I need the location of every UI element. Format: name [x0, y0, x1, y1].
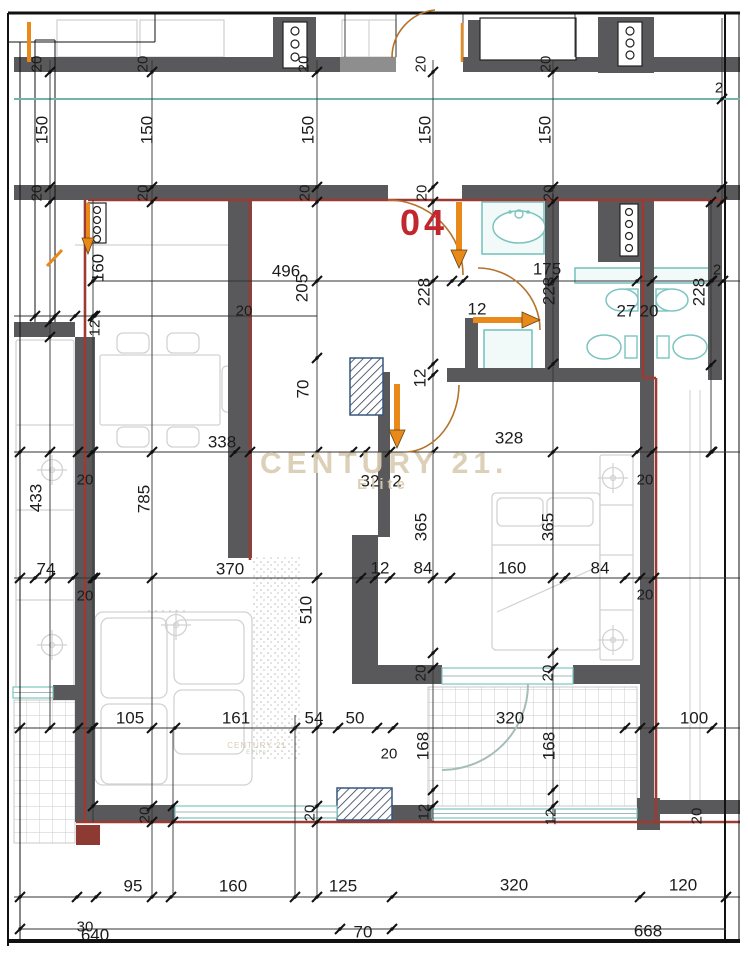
dim-tick-dot — [431, 362, 434, 365]
dim-tick-dot — [350, 450, 353, 453]
shaft-circle — [626, 51, 634, 59]
dim-tick-dot — [635, 450, 638, 453]
dimension-label: 12 — [87, 320, 104, 337]
dim-tick-dot — [551, 651, 554, 654]
floorplan-page: 1501501501501502020202020202020202022496… — [0, 0, 748, 960]
dimension-label: 668 — [634, 922, 662, 941]
dim-tick-dot — [315, 70, 318, 73]
duct-hatch — [337, 788, 392, 820]
shaft-circle — [626, 233, 633, 240]
dim-tick-dot — [315, 450, 318, 453]
dimension-label: 228 — [540, 277, 559, 305]
dim-tick-dot — [388, 450, 391, 453]
plan-layers: 1501501501501502020202020202020202022496… — [8, 10, 740, 946]
dimension-label: 74 — [37, 560, 56, 579]
shaft-circle — [94, 236, 101, 243]
dimension-label: 2 — [392, 472, 401, 491]
dimension-label: 20 — [414, 185, 431, 202]
dim-tick-dot — [721, 279, 724, 282]
dim-tick-dot — [150, 895, 153, 898]
dim-tick-dot — [720, 200, 723, 203]
dimension-label: 50 — [346, 709, 365, 728]
dim-tick-dot — [652, 576, 655, 579]
dim-tick-dot — [18, 927, 21, 930]
dimension-label: 160 — [89, 254, 108, 282]
dimension-label: 320 — [500, 876, 528, 895]
dimension-label: 84 — [414, 559, 433, 578]
shaft-circle — [626, 209, 633, 216]
dim-tick-dot — [173, 726, 176, 729]
dim-tick-dot — [709, 279, 712, 282]
dim-tick-dot — [76, 450, 79, 453]
dim-tick-dot — [169, 895, 172, 898]
furniture — [600, 455, 633, 660]
dimension-label: 12 — [416, 804, 433, 821]
dim-tick-dot — [720, 97, 723, 100]
dim-tick-dot — [338, 927, 341, 930]
dim-tick-dot — [390, 895, 393, 898]
shaft-circle — [94, 207, 101, 214]
dim-tick-dot — [48, 335, 51, 338]
dimension-label: 338 — [208, 433, 236, 452]
dimension-label: 20 — [413, 665, 430, 682]
dimension-label: 20 — [135, 56, 152, 73]
dim-tick-dot — [551, 804, 554, 807]
dim-tick-dot — [720, 185, 723, 188]
dim-tick-dot — [91, 726, 94, 729]
dim-tick-dot — [18, 450, 21, 453]
furniture — [167, 333, 199, 353]
dim-tick-dot — [150, 726, 153, 729]
dim-tick-dot — [709, 200, 712, 203]
dim-tick-dot — [623, 576, 626, 579]
dim-tick-dot — [150, 576, 153, 579]
wc-tank — [625, 336, 637, 358]
furniture — [174, 620, 244, 684]
dim-tick-dot — [48, 70, 51, 73]
dim-tick-dot — [315, 200, 318, 203]
dim-tick-dot — [710, 726, 713, 729]
apartment-boundary-block — [76, 825, 100, 845]
wall — [573, 665, 640, 684]
floor-plan-drawing: 1501501501501502020202020202020202022496… — [0, 0, 748, 960]
dimension-label: 150 — [416, 116, 435, 144]
dim-tick-dot — [76, 726, 79, 729]
sink-or-wc-bowl — [587, 335, 621, 359]
sink-or-wc-bowl — [673, 335, 707, 359]
dimension-label: 205 — [293, 274, 312, 302]
dimension-label: 2 — [713, 262, 721, 279]
dimension-label: 27 — [617, 302, 636, 321]
dim-tick-dot — [551, 788, 554, 791]
dim-tick-dot — [171, 820, 174, 823]
dimension-label: 100 — [680, 709, 708, 728]
dim-tick-dot — [431, 200, 434, 203]
dim-tick-dot — [150, 450, 153, 453]
dim-tick-dot — [709, 450, 712, 453]
dim-tick-dot — [431, 70, 434, 73]
dimension-label: 12 — [543, 809, 560, 826]
furniture — [140, 20, 224, 57]
dim-tick-dot — [650, 279, 653, 282]
dim-tick-dot — [48, 450, 51, 453]
furniture — [57, 20, 137, 57]
dim-tick-dot — [171, 804, 174, 807]
dimension-label: 20 — [689, 808, 706, 825]
door-swing-arc — [388, 200, 463, 275]
dim-tick-dot — [391, 726, 394, 729]
wall — [53, 685, 75, 700]
dimension-label: 785 — [135, 485, 154, 513]
furniture — [167, 427, 199, 447]
wall — [14, 185, 388, 200]
dimension-label: 70 — [294, 380, 313, 399]
dim-tick-dot — [315, 895, 318, 898]
fixture-dot — [508, 210, 512, 214]
dim-tick-dot — [48, 726, 51, 729]
dimension-label: 70 — [354, 923, 373, 942]
wall — [75, 805, 175, 822]
dim-tick-dot — [563, 576, 566, 579]
dimension-label: 20 — [381, 746, 398, 763]
dimension-label: 160 — [219, 877, 247, 896]
dimension-label: 168 — [540, 732, 559, 760]
dim-tick-dot — [248, 450, 251, 453]
wall — [228, 200, 252, 558]
dim-tick-dot — [551, 450, 554, 453]
dimension-label: 168 — [414, 732, 433, 760]
dimension-label: 32 — [361, 472, 380, 491]
dim-tick-dot — [431, 185, 434, 188]
dim-tick-dot — [18, 576, 21, 579]
dim-tick-dot — [48, 200, 51, 203]
shaft-circle — [626, 221, 633, 228]
dimension-label: 84 — [591, 559, 610, 578]
dim-tick-dot — [91, 804, 94, 807]
dimension-label: 20 — [413, 56, 430, 73]
dimension-label: 160 — [498, 559, 526, 578]
furniture — [16, 340, 74, 688]
dimension-label: 175 — [533, 260, 561, 279]
furniture — [100, 355, 220, 425]
dim-tick-dot — [48, 185, 51, 188]
dimension-label: 20 — [637, 587, 654, 604]
dimension-label: 20 — [302, 805, 319, 822]
dim-tick-dot — [448, 576, 451, 579]
dimension-label: 54 — [305, 709, 324, 728]
shaft-circle — [94, 227, 101, 234]
door-swing-arc — [392, 10, 435, 58]
wall — [462, 185, 740, 200]
furniture — [497, 498, 543, 526]
dimension-label: 150 — [33, 116, 52, 144]
dim-tick-dot — [94, 895, 97, 898]
dimension-label: 2 — [715, 80, 723, 97]
dim-tick-dot — [650, 450, 653, 453]
wall — [352, 535, 378, 668]
dim-tick-dot — [652, 726, 655, 729]
dim-tick-dot — [71, 576, 74, 579]
dim-tick-dot — [73, 314, 76, 317]
shaft-circle — [94, 217, 101, 224]
dim-tick-dot — [638, 576, 641, 579]
dim-tick-dot — [363, 450, 366, 453]
dim-tick-dot — [336, 726, 339, 729]
dimension-label: 20 — [77, 588, 94, 605]
sink-or-wc-bowl — [493, 211, 545, 243]
dim-tick-dot — [315, 279, 318, 282]
dim-tick-dot — [551, 576, 554, 579]
direction-arrow-head — [522, 312, 540, 328]
dim-tick-dot — [48, 320, 51, 323]
dimension-label: 20 — [637, 472, 654, 489]
dim-tick-dot — [709, 363, 712, 366]
dim-tick-dot — [91, 450, 94, 453]
dim-tick-dot — [359, 576, 362, 579]
dim-tick-dot — [390, 927, 393, 930]
dim-tick-dot — [18, 726, 21, 729]
direction-arrow-head — [451, 250, 467, 268]
duct-hatch — [350, 358, 383, 415]
dim-tick-dot — [315, 185, 318, 188]
dim-tick-dot — [315, 576, 318, 579]
dim-tick-dot — [18, 895, 21, 898]
dim-tick-dot — [724, 895, 727, 898]
wall — [447, 368, 640, 382]
sink-or-wc-bowl — [656, 289, 688, 311]
dimension-label: 20 — [137, 807, 154, 824]
dimension-label: 20 — [540, 665, 557, 682]
dim-tick-dot — [315, 356, 318, 359]
shaft-box — [480, 18, 576, 60]
dimension-label: 20 — [541, 185, 558, 202]
dim-tick-dot — [431, 450, 434, 453]
dim-tick-dot — [635, 279, 638, 282]
furniture — [101, 618, 167, 698]
dim-tick-dot — [431, 666, 434, 669]
dimension-label: 328 — [495, 429, 523, 448]
dimension-label: 150 — [138, 116, 157, 144]
dimension-label: 510 — [297, 596, 316, 624]
dimension-label: 161 — [222, 709, 250, 728]
dim-tick-dot — [91, 314, 94, 317]
dim-tick-dot — [638, 726, 641, 729]
terrace-tiles — [14, 700, 75, 843]
dimension-label: 20 — [135, 185, 152, 202]
dim-tick-dot — [375, 726, 378, 729]
dim-tick-dot — [450, 279, 453, 282]
dimension-label: 105 — [116, 709, 144, 728]
terrace-tiles — [428, 687, 637, 806]
dim-tick-dot — [91, 576, 94, 579]
wall — [708, 200, 722, 380]
shaft-circle — [626, 27, 634, 35]
dimension-label: 20 — [296, 56, 313, 73]
dimension-label: 12 — [411, 369, 430, 388]
dimension-label: 20 — [297, 185, 314, 202]
dim-tick-dot — [638, 895, 641, 898]
shaft-circle — [626, 245, 633, 252]
dimension-label: 320 — [496, 709, 524, 728]
dim-tick-dot — [551, 362, 554, 365]
dimension-label: 95 — [124, 877, 143, 896]
shaft-circle — [291, 40, 299, 48]
dimension-label: 370 — [216, 560, 244, 579]
dimension-label: 20 — [538, 56, 555, 73]
dimension-label: 20 — [236, 303, 253, 320]
dimension-label: 150 — [536, 116, 555, 144]
dimension-label: 365 — [539, 513, 558, 541]
wall — [340, 57, 396, 72]
dimension-label: 20 — [29, 56, 46, 73]
dimension-label: 433 — [27, 484, 46, 512]
dimension-label: 12 — [468, 300, 487, 319]
wc-tank — [657, 336, 669, 358]
dimension-label: 365 — [412, 513, 431, 541]
furniture — [117, 427, 149, 447]
dimension-label: 20 — [77, 472, 94, 489]
dimension-label: 640 — [81, 926, 109, 945]
shaft-circle — [626, 39, 634, 47]
shaft-circle — [291, 27, 299, 35]
dimension-label: 228 — [415, 278, 434, 306]
dimension-label: 125 — [329, 877, 357, 896]
dim-tick-dot — [431, 373, 434, 376]
dim-tick-dot — [33, 314, 36, 317]
dimension-label: 20 — [640, 302, 659, 321]
dimension-label: 20 — [29, 185, 46, 202]
dimension-label: 12 — [371, 559, 390, 578]
dimension-label: 120 — [669, 876, 697, 895]
dim-tick-dot — [623, 726, 626, 729]
dimension-label: 228 — [690, 278, 709, 306]
dim-tick-dot — [431, 651, 434, 654]
dimension-label: 150 — [299, 116, 318, 144]
dim-tick-dot — [461, 279, 464, 282]
fixture-dot — [526, 210, 530, 214]
dim-tick-dot — [75, 895, 78, 898]
wall — [14, 322, 75, 337]
furniture — [117, 333, 149, 353]
direction-arrow-head — [389, 430, 405, 448]
dim-tick-dot — [431, 788, 434, 791]
